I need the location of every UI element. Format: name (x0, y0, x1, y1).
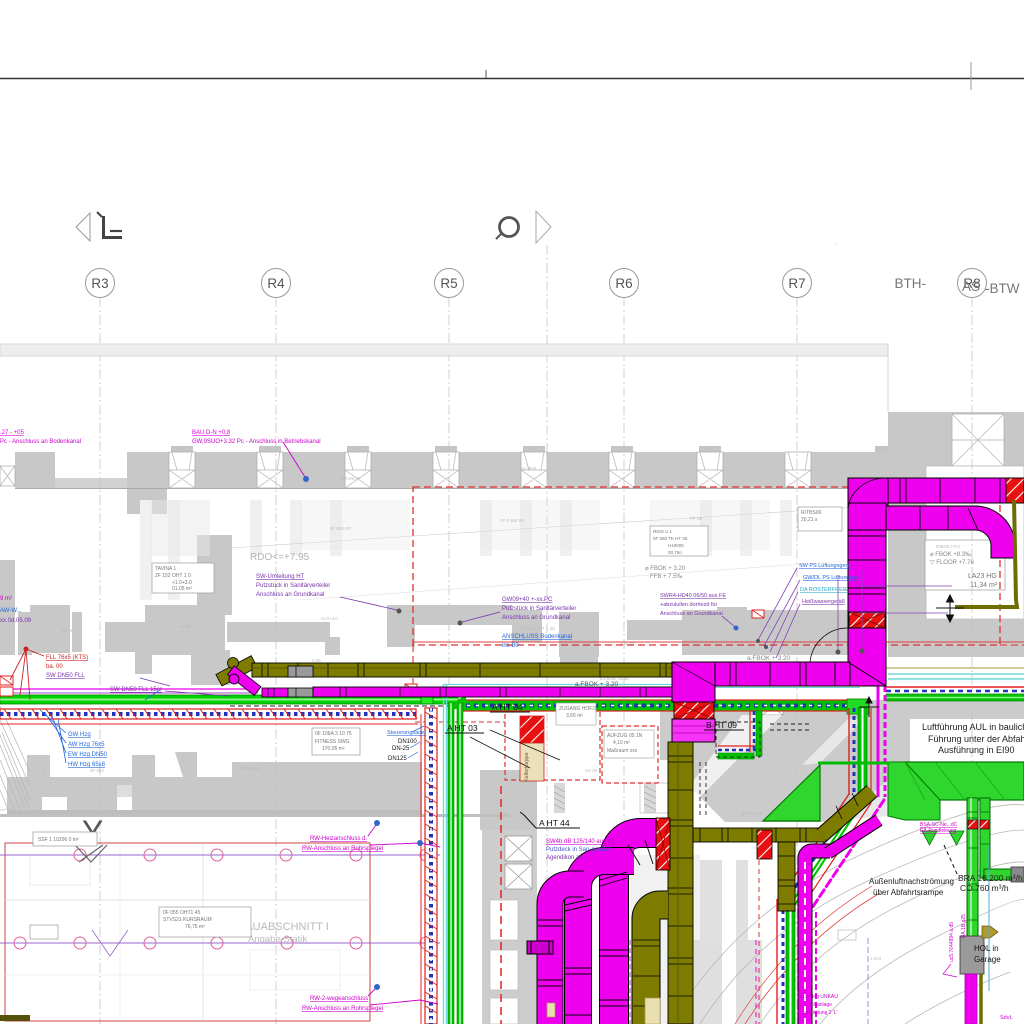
svg-text:Pc - Anschluss an Bodenkanal: Pc - Anschluss an Bodenkanal (0, 439, 81, 445)
svg-text:Anschluss an Grundkanal: Anschluss an Grundkanal (502, 615, 570, 621)
svg-text:xx.0d.05.09: xx.0d.05.09 (0, 618, 32, 624)
svg-text:SW PS Lüftungsgerät: SW PS Lüftungsgerät (799, 563, 852, 569)
svg-text:1F 0 SW 06: 1F 0 SW 06 (500, 518, 524, 523)
svg-text:1F 062 OHT 1 45: 1F 062 OHT 1 45 (520, 626, 555, 631)
svg-text:R6: R6 (615, 276, 632, 291)
svg-text:AW Hzg 76x5: AW Hzg 76x5 (68, 742, 105, 748)
svg-text:0F 106A 3 10 75: 0F 106A 3 10 75 (315, 731, 352, 737)
svg-text:EA-Rondleleung: EA-Rondleleung (920, 828, 957, 834)
svg-text:Putzstück in Sanitärverteiler: Putzstück in Sanitärverteiler (502, 606, 576, 612)
svg-text:RW-2-wegeanschluss: RW-2-wegeanschluss (310, 996, 368, 1002)
svg-text:La..tdctng UNKAU: La..tdctng UNKAU (797, 994, 838, 1000)
svg-text:SdvL: SdvL (1000, 1015, 1013, 1021)
svg-text:Maßraum xxx: Maßraum xxx (607, 748, 638, 754)
svg-text:GW/DL PS Lüftungsge: GW/DL PS Lüftungsge (803, 575, 858, 581)
svg-text:-BTW: -BTW (985, 281, 1020, 296)
svg-text:R4: R4 (267, 276, 285, 291)
svg-text:FITNESS SWG: FITNESS SWG (315, 739, 350, 745)
svg-text:RIBOK HT3: RIBOK HT3 (936, 544, 960, 549)
svg-text:ZUGANG HOF/2: ZUGANG HOF/2 (559, 706, 597, 712)
svg-text:Luftführung AUL in baulichen K: Luftführung AUL in baulichen Ka (922, 722, 1024, 732)
svg-text:4,10 m²: 4,10 m² (613, 740, 630, 746)
svg-text:SWR4-HD40 06/50 aus FE: SWR4-HD40 06/50 aus FE (660, 593, 726, 599)
svg-text:01.05: 01.05 (62, 628, 74, 633)
svg-text:AS: AS (962, 279, 980, 294)
svg-text:BA.1B.g25: BA.1B.g25 (961, 914, 967, 938)
svg-text:...nmeßanlage: ...nmeßanlage (800, 1002, 832, 1008)
svg-text:⌀ FBOK + 3.20: ⌀ FBOK + 3.20 (645, 566, 686, 572)
svg-text:0F 068 TK HT 05: 0F 068 TK HT 05 (653, 536, 688, 541)
svg-text:1.0x3: 1.0x3 (870, 956, 882, 961)
svg-text:BTH-: BTH- (895, 276, 927, 291)
svg-text:R5: R5 (440, 276, 457, 291)
svg-text:STVS21 KURSRAUM: STVS21 KURSRAUM (163, 917, 212, 923)
svg-text:A...gasleitung 2 'L': A...gasleitung 2 'L' (797, 1010, 838, 1016)
svg-text:Putzdeck in San-geräten: Putzdeck in San-geräten (546, 847, 612, 853)
svg-text:BRA 18.200 m³/h: BRA 18.200 m³/h (958, 873, 1023, 883)
svg-text:SW4b dB 125/140 aus EI): SW4b dB 125/140 aus EI) (546, 839, 615, 845)
svg-text:01.05 m²: 01.05 m² (172, 586, 192, 592)
svg-text:Angabe Statik: Angabe Statik (248, 934, 307, 945)
svg-text:04.0920: 04.0920 (520, 466, 537, 471)
svg-text:Kellertreppe: Kellertreppe (524, 752, 530, 782)
svg-text:3,65 m²: 3,65 m² (566, 713, 583, 719)
svg-text:RITBS06: RITBS06 (801, 510, 822, 516)
svg-text:RIDS U 1: RIDS U 1 (653, 529, 673, 534)
svg-text:Anschluss an Grundkanal: Anschluss an Grundkanal (256, 592, 324, 598)
svg-text:▽ FLOOR +7.76: ▽ FLOOR +7.76 (930, 560, 974, 566)
svg-text:00,75o: 00,75o (668, 550, 682, 555)
svg-text:2F0.09.20: 2F0.09.20 (340, 476, 361, 481)
svg-text:GW09+40 +-xx.PC: GW09+40 +-xx.PC (502, 597, 553, 603)
svg-text:2F 152 OHT 1 0: 2F 152 OHT 1 0 (155, 573, 191, 579)
svg-text:ins B0: ins B0 (502, 643, 519, 649)
svg-text:Steuerungsader: Steuerungsader (387, 730, 426, 736)
svg-text:RW-Heizanschluss d.: RW-Heizanschluss d. (310, 836, 367, 842)
svg-text:.27 - +05: .27 - +05 (0, 430, 25, 436)
svg-text:A HT 44: A HT 44 (539, 818, 570, 828)
svg-text:SW DN50 FLL 15er: SW DN50 FLL 15er (110, 687, 162, 693)
svg-text:über Abfahrtsrampe: über Abfahrtsrampe (873, 888, 944, 897)
svg-text:170,05 m²: 170,05 m² (322, 746, 345, 752)
svg-text:ANSCHLUSS Bodenkanal: ANSCHLUSS Bodenkanal (502, 634, 572, 640)
svg-text:76,75 m²: 76,75 m² (185, 924, 205, 930)
svg-text:a.FBOK + 3.20: a.FBOK + 3.20 (747, 655, 791, 662)
svg-text:LA23 HG: LA23 HG (968, 573, 997, 580)
svg-text:xx.0d: xx.0d (180, 624, 191, 629)
svg-text:SSF 1 10206 0 m²: SSF 1 10206 0 m² (38, 837, 79, 843)
svg-text:DN100: DN100 (398, 739, 417, 745)
svg-text:Putzstück in Sanitärverteiler: Putzstück in Sanitärverteiler (256, 583, 330, 589)
svg-text:A HT 03: A HT 03 (447, 723, 478, 733)
svg-text:GW,9SUO+3.32 Pc - Anschluss in: GW,9SUO+3.32 Pc - Anschluss in Betriebsk… (192, 439, 321, 445)
svg-text:B HT 09: B HT 09 (706, 720, 737, 730)
svg-text:FLL 76x5 (KTS): FLL 76x5 (KTS) (46, 655, 88, 661)
svg-text:Führung unter der Abfahrtsram: Führung unter der Abfahrtsram (928, 734, 1024, 744)
svg-text:RDO<=+7.95: RDO<=+7.95 (250, 552, 310, 563)
svg-text:+1.0+3.0: +1.0+3.0 (320, 616, 338, 621)
svg-text:SW-Umleitung HT: SW-Umleitung HT (256, 574, 305, 580)
svg-text:DN-25: DN-25 (392, 746, 410, 752)
svg-text:ZU 05: ZU 05 (585, 768, 598, 773)
svg-text:CO 760 m³/h: CO 760 m³/h (960, 883, 1009, 893)
svg-text:0F 062: 0F 062 (90, 768, 105, 773)
svg-text:BF 05 SW: BF 05 SW (240, 766, 261, 771)
svg-text:Agendikon an...: Agendikon an... (546, 855, 588, 861)
svg-text:uc5.7644894 a.d5: uc5.7644894 a.d5 (949, 922, 955, 962)
svg-text:Anschluss an Grundkanal: Anschluss an Grundkanal (660, 611, 723, 617)
svg-text:HOL in: HOL in (974, 944, 999, 953)
svg-text:A HT 04: A HT 04 (492, 702, 523, 712)
svg-text:H19005: H19005 (668, 543, 684, 548)
svg-text:⌀ FBOK +8.3‰: ⌀ FBOK +8.3‰ (930, 552, 971, 558)
svg-text:11,34 m²: 11,34 m² (970, 582, 998, 589)
svg-text:Außenluftnachströmung: Außenluftnachströmung (869, 877, 954, 886)
svg-text:0,05: 0,05 (312, 658, 321, 663)
svg-text:2F 062 HT: 2F 062 HT (330, 526, 352, 531)
svg-text:20,21 s: 20,21 s (801, 517, 818, 523)
svg-text:GW Hzg: GW Hzg (68, 732, 91, 738)
svg-text:SW DN50 FLL: SW DN50 FLL (46, 673, 85, 679)
svg-text:FFB + 7.5‰: FFB + 7.5‰ (650, 574, 683, 580)
svg-text:AUFZUG 05 1N: AUFZUG 05 1N (607, 733, 643, 739)
svg-text:p.Wn...xdr: p.Wn...xdr (742, 811, 763, 816)
svg-text:ba. 00: ba. 00 (46, 664, 63, 670)
svg-text:Ausführung in EI90: Ausführung in EI90 (938, 745, 1015, 755)
svg-text:RW-Anschluss an Rohrspiegel: RW-Anschluss an Rohrspiegel (302, 846, 383, 852)
svg-text:9 m²: 9 m² (0, 596, 12, 602)
svg-text:0F 055 OHT1 45: 0F 055 OHT1 45 (163, 910, 200, 916)
svg-text:DN125: DN125 (388, 756, 407, 762)
svg-text:EW Hzg DN50: EW Hzg DN50 (68, 752, 108, 758)
svg-text:Heißwassergefäß: Heißwassergefäß (802, 599, 846, 605)
svg-text:R7: R7 (788, 276, 805, 291)
svg-text:BAU D-N +0.8: BAU D-N +0.8 (192, 430, 231, 436)
svg-text:TAVINA 1: TAVINA 1 (155, 566, 176, 572)
svg-text:RW-Anschluss an Rohrspiegel: RW-Anschluss an Rohrspiegel (302, 1006, 383, 1012)
svg-text:+abzulullen dorrlezd für: +abzulullen dorrlezd für (660, 602, 717, 608)
svg-text:Garage: Garage (974, 955, 1001, 964)
svg-text:AW-W...: AW-W... (0, 608, 22, 614)
svg-text:PF 08: PF 08 (690, 516, 703, 521)
svg-text:a.FBOK + 3.20: a.FBOK + 3.20 (575, 681, 619, 688)
svg-text:BAUABSCHNITT I: BAUABSCHNITT I (238, 921, 329, 933)
svg-text:R3: R3 (91, 276, 108, 291)
svg-text:DA ROSTERFREIE: DA ROSTERFREIE (800, 587, 848, 593)
svg-text:HW Hzg 65x8: HW Hzg 65x8 (68, 762, 106, 768)
